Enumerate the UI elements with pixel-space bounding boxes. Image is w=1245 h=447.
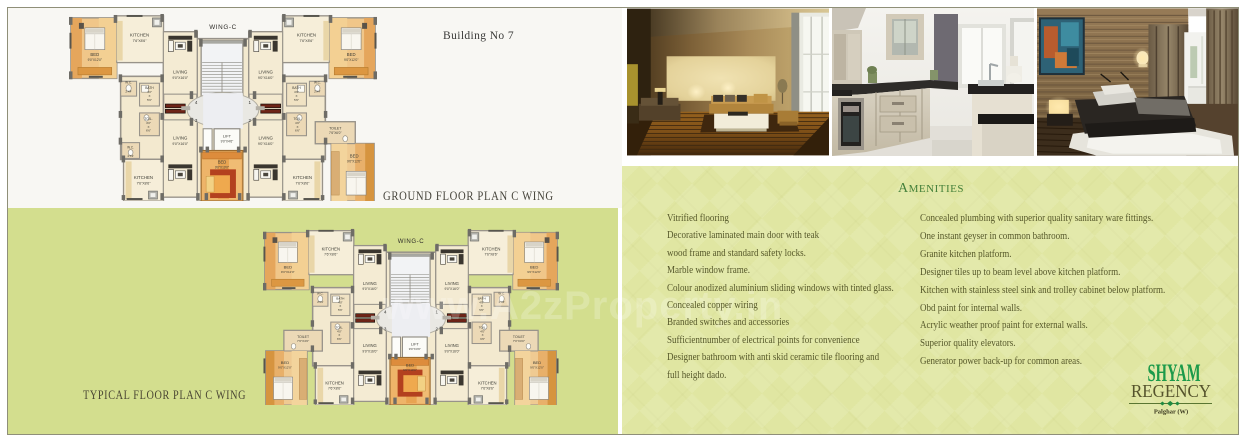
svg-text:LIVING: LIVING	[173, 136, 188, 141]
svg-text:W.C.: W.C.	[127, 146, 134, 150]
svg-text:KITCHEN: KITCHEN	[322, 246, 340, 251]
svg-text:9'0"X12'0": 9'0"X12'0"	[88, 58, 102, 62]
svg-text:LIVING: LIVING	[259, 69, 274, 74]
svg-text:7'6"X8'6": 7'6"X8'6"	[300, 39, 315, 43]
svg-text:KITCHEN: KITCHEN	[325, 381, 343, 386]
svg-text:2'X4': 2'X4'	[314, 90, 321, 94]
svg-text:9'0"X16'0": 9'0"X16'0"	[172, 76, 189, 80]
svg-text:9'0"X16'0": 9'0"X16'0"	[362, 349, 378, 353]
svg-text:W.C.: W.C.	[125, 81, 132, 85]
svg-text:WING-C: WING-C	[209, 24, 237, 31]
svg-text:LIVING: LIVING	[363, 281, 377, 286]
svg-text:KITCHEN: KITCHEN	[134, 175, 153, 180]
svg-text:9'0"X12'0": 9'0"X12'0"	[347, 159, 361, 163]
svg-text:LIVING: LIVING	[363, 343, 377, 348]
svg-text:7'6"X8'6": 7'6"X8'6"	[296, 182, 311, 186]
svg-text:BED: BED	[218, 159, 227, 164]
svg-text:KITCHEN: KITCHEN	[297, 33, 316, 38]
svg-text:KITCHEN: KITCHEN	[482, 246, 500, 251]
svg-text:5'6": 5'6"	[338, 308, 343, 312]
svg-text:6'6": 6'6"	[480, 337, 485, 341]
svg-text:7'6"X8'6": 7'6"X8'6"	[485, 253, 499, 257]
svg-text:BED: BED	[284, 265, 293, 270]
svg-text:BED: BED	[350, 153, 359, 158]
svg-text:9'0"X12'0": 9'0"X12'0"	[344, 58, 358, 62]
svg-text:2'X4': 2'X4'	[125, 90, 132, 94]
svg-text:KITCHEN: KITCHEN	[293, 175, 312, 180]
svg-text:LIVING: LIVING	[259, 136, 274, 141]
svg-text:BED: BED	[90, 52, 99, 57]
svg-text:LIVING: LIVING	[173, 69, 188, 74]
svg-text:2'X4': 2'X4'	[317, 300, 324, 304]
svg-text:9'0"X16'0": 9'0"X16'0"	[258, 142, 275, 146]
svg-text:9'0"X12'0": 9'0"X12'0"	[281, 270, 295, 274]
svg-text:4'X3': 4'X3'	[127, 154, 134, 158]
svg-text:9'0"X12'0": 9'0"X12'0"	[527, 270, 541, 274]
svg-text:7'6"X8'6": 7'6"X8'6"	[481, 387, 495, 391]
svg-text:6'6": 6'6"	[337, 337, 342, 341]
svg-text:KITCHEN: KITCHEN	[478, 381, 496, 386]
svg-text:BED: BED	[347, 52, 356, 57]
svg-text:LIFT: LIFT	[223, 134, 232, 139]
svg-text:9'0"X16'0": 9'0"X16'0"	[258, 76, 275, 80]
svg-text:7'6"X8'6": 7'6"X8'6"	[324, 253, 338, 257]
svg-text:9'0"X4'6": 9'0"X4'6"	[409, 347, 421, 351]
svg-text:BED: BED	[281, 360, 290, 365]
svg-text:9'0"X12'0": 9'0"X12'0"	[278, 366, 292, 370]
svg-text:TOILET: TOILET	[329, 127, 342, 131]
svg-text:6'6": 6'6"	[146, 129, 151, 133]
svg-text:LIFT: LIFT	[411, 342, 420, 346]
svg-text:9'0"X16'0": 9'0"X16'0"	[444, 349, 460, 353]
svg-text:BED: BED	[406, 362, 414, 367]
svg-text:Palghar (W): Palghar (W)	[1154, 409, 1188, 416]
svg-text:REGENCY: REGENCY	[1131, 381, 1211, 401]
svg-text:WING-C: WING-C	[398, 239, 425, 245]
svg-text:7'6"X8'6": 7'6"X8'6"	[133, 39, 148, 43]
svg-text:LIVING: LIVING	[445, 343, 459, 348]
svg-text:7'6"X6'0": 7'6"X6'0"	[329, 131, 342, 135]
svg-text:6'6": 6'6"	[295, 129, 300, 133]
svg-text:7'6"X8'6": 7'6"X8'6"	[137, 182, 152, 186]
svg-text:9'0"X10'0": 9'0"X10'0"	[403, 368, 417, 372]
svg-text:7'0"X4'0": 7'0"X4'0"	[513, 339, 525, 343]
svg-text:9'0"X4'6": 9'0"X4'6"	[221, 140, 234, 144]
svg-text:KITCHEN: KITCHEN	[130, 33, 149, 38]
svg-text:W.C.: W.C.	[317, 292, 324, 296]
svg-text:7'0"X4'0": 7'0"X4'0"	[297, 339, 309, 343]
svg-text:9'0"X10'0": 9'0"X10'0"	[215, 165, 229, 169]
svg-text:9'0"X16'0": 9'0"X16'0"	[362, 287, 378, 291]
svg-text:9'0"X16'0": 9'0"X16'0"	[172, 142, 189, 146]
svg-text:W.C.: W.C.	[314, 81, 321, 85]
svg-text:BED: BED	[533, 360, 542, 365]
svg-text:5'6": 5'6"	[147, 98, 152, 102]
svg-text:9'0"X12'0": 9'0"X12'0"	[530, 366, 544, 370]
svg-text:BED: BED	[530, 265, 539, 270]
svg-text:7'6"X8'6": 7'6"X8'6"	[328, 387, 342, 391]
svg-text:5'6": 5'6"	[294, 98, 299, 102]
